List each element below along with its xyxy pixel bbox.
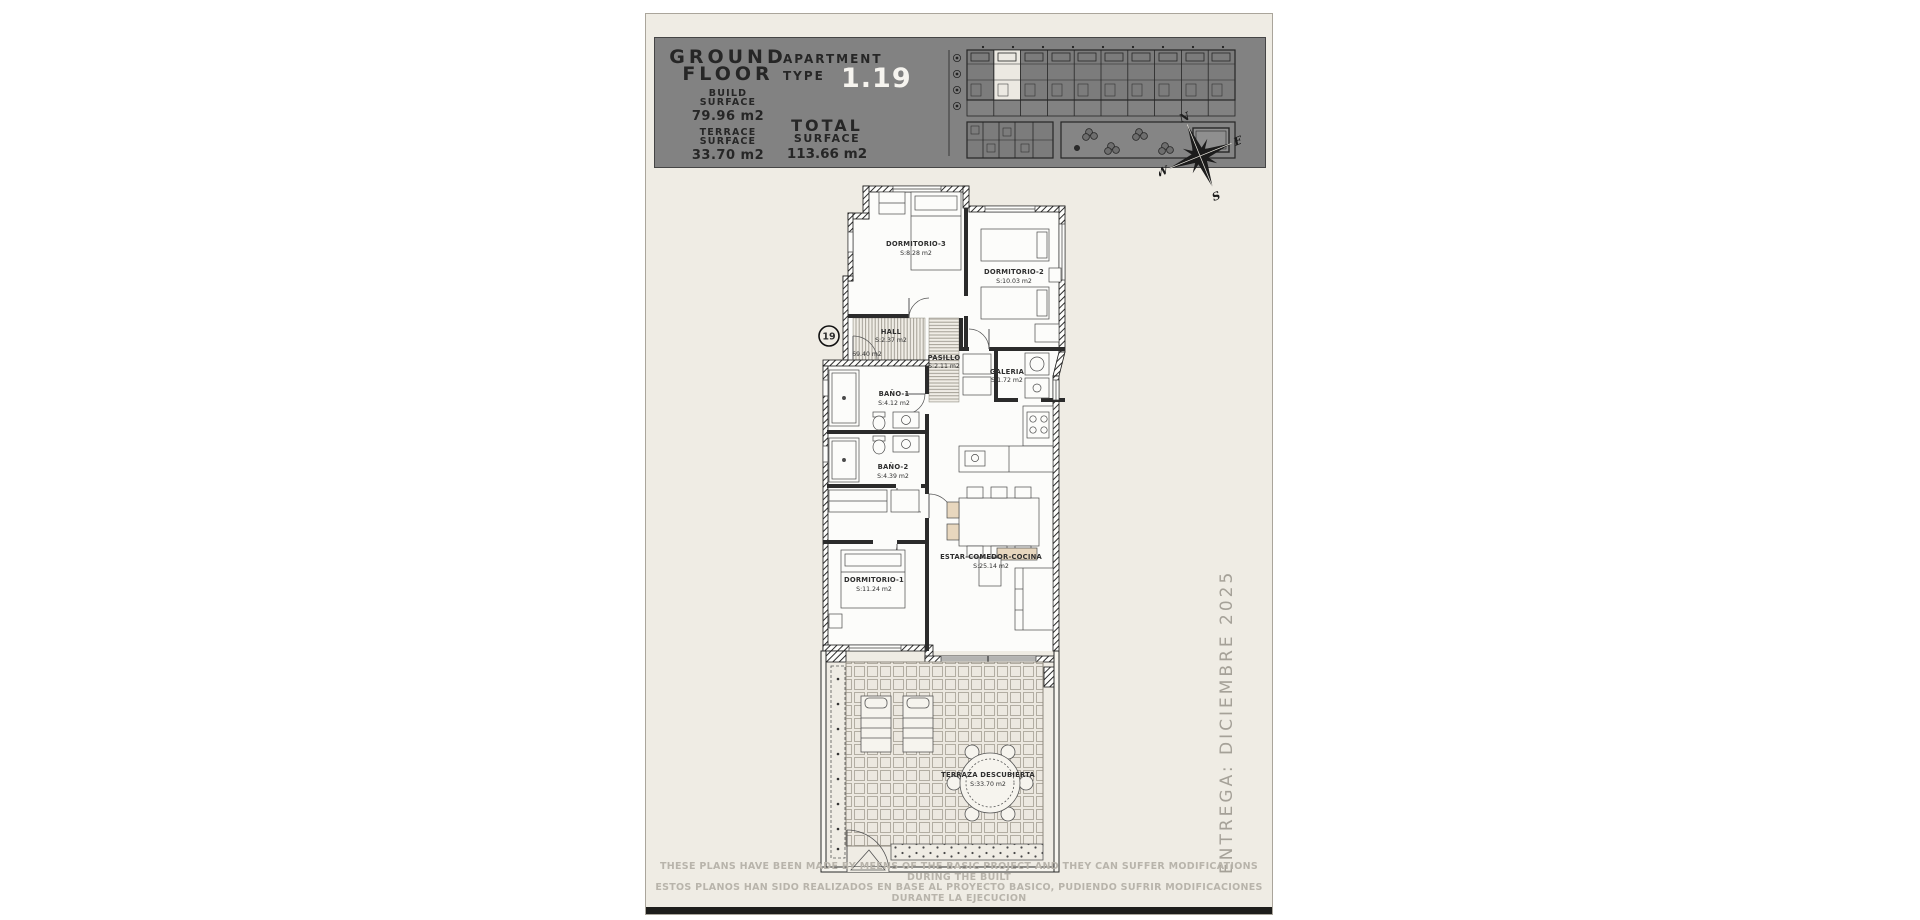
svg-text:S:25.14 m2: S:25.14 m2 bbox=[973, 563, 1009, 570]
floor-title-line2: FLOOR bbox=[669, 66, 787, 83]
disclaimer-line2: ESTOS PLANOS HAN SIDO REALIZADOS EN BASE… bbox=[646, 883, 1272, 904]
svg-text:S:4.12 m2: S:4.12 m2 bbox=[878, 400, 910, 407]
svg-text:BAÑO-2: BAÑO-2 bbox=[878, 462, 909, 471]
compass-east-label: E bbox=[1231, 133, 1241, 149]
svg-text:BAÑO-1: BAÑO-1 bbox=[879, 389, 910, 398]
svg-text:TERRAZA DESCUBIERTA: TERRAZA DESCUBIERTA bbox=[941, 771, 1035, 779]
apartment-number: 1.19 bbox=[841, 63, 912, 94]
total-surface-value: 113.66 m2 bbox=[773, 146, 881, 162]
compass-south-label: S bbox=[1210, 189, 1222, 202]
compass-icon: N E S W bbox=[1159, 110, 1241, 202]
site-units-row bbox=[967, 50, 1235, 100]
svg-text:S:11.24 m2: S:11.24 m2 bbox=[856, 586, 892, 593]
hedge-strip bbox=[891, 844, 1043, 860]
svg-text:S:8.28 m2: S:8.28 m2 bbox=[900, 250, 932, 257]
useful-area-label: 69.40 m2 bbox=[852, 351, 882, 358]
svg-text:DORMITORIO-1: DORMITORIO-1 bbox=[844, 576, 904, 584]
compass-north-label: N bbox=[1176, 110, 1192, 126]
disclaimer-line1: THESE PLANS HAVE BEEN MADE BY MEENS OF T… bbox=[646, 862, 1272, 883]
floor-plan: 19 69.40 m2 DORMITORIO-3 S:8.28 m2 DORMI… bbox=[801, 184, 1101, 906]
terrace-surface-value: 33.70 m2 bbox=[669, 148, 787, 163]
svg-text:DORMITORIO-3: DORMITORIO-3 bbox=[886, 240, 946, 248]
disclaimer: THESE PLANS HAVE BEEN MADE BY MEENS OF T… bbox=[646, 862, 1272, 904]
svg-text:PASILLO: PASILLO bbox=[928, 354, 961, 362]
unit-badge: 19 bbox=[819, 326, 839, 346]
site-trees-left bbox=[953, 54, 960, 109]
wardrobe-icon bbox=[829, 490, 919, 512]
plan-sheet: GROUND FLOOR BUILD SURFACE 79.96 m2 TERR… bbox=[645, 13, 1273, 915]
svg-text:S:4.39 m2: S:4.39 m2 bbox=[877, 473, 909, 480]
apartment-type-block: APARTMENT TYPE 1.19 bbox=[783, 52, 903, 83]
unit-badge-number: 19 bbox=[822, 332, 835, 343]
svg-text:S:1.72 m2: S:1.72 m2 bbox=[991, 377, 1023, 384]
build-surface-block: BUILD SURFACE 79.96 m2 bbox=[669, 89, 787, 124]
total-surface-label1: TOTAL bbox=[773, 119, 881, 133]
svg-text:DORMITORIO-2: DORMITORIO-2 bbox=[984, 268, 1044, 276]
total-surface-block: TOTAL SURFACE 113.66 m2 bbox=[773, 119, 881, 162]
bottom-bar bbox=[646, 907, 1272, 914]
svg-text:S:33.70 m2: S:33.70 m2 bbox=[970, 781, 1006, 788]
svg-text:S:10.03 m2: S:10.03 m2 bbox=[996, 278, 1032, 285]
site-dots bbox=[982, 46, 1224, 48]
build-surface-label2: SURFACE bbox=[669, 98, 787, 107]
svg-text:GALERIA: GALERIA bbox=[990, 368, 1025, 376]
svg-text:ESTAR-COMEDOR-COCINA: ESTAR-COMEDOR-COCINA bbox=[940, 553, 1042, 561]
compass-west-label: W bbox=[1159, 163, 1172, 180]
delivery-note: ENTREGA: DICIEMBRE 2025 bbox=[1217, 548, 1249, 896]
screenshot-stage: GROUND FLOOR BUILD SURFACE 79.96 m2 TERR… bbox=[0, 0, 1920, 920]
build-surface-value: 79.96 m2 bbox=[669, 109, 787, 124]
floor-title: GROUND FLOOR bbox=[669, 49, 787, 83]
total-surface-label2: SURFACE bbox=[773, 133, 881, 144]
terrace-surface-block: TERRACE SURFACE 33.70 m2 bbox=[669, 128, 787, 163]
svg-text:S:2.11 m2: S:2.11 m2 bbox=[928, 363, 960, 370]
terrace bbox=[821, 651, 1059, 872]
svg-text:HALL: HALL bbox=[881, 328, 902, 336]
svg-text:S:2.37 m2: S:2.37 m2 bbox=[875, 337, 907, 344]
site-lower-building bbox=[967, 122, 1053, 158]
terrace-surface-label2: SURFACE bbox=[669, 137, 787, 146]
